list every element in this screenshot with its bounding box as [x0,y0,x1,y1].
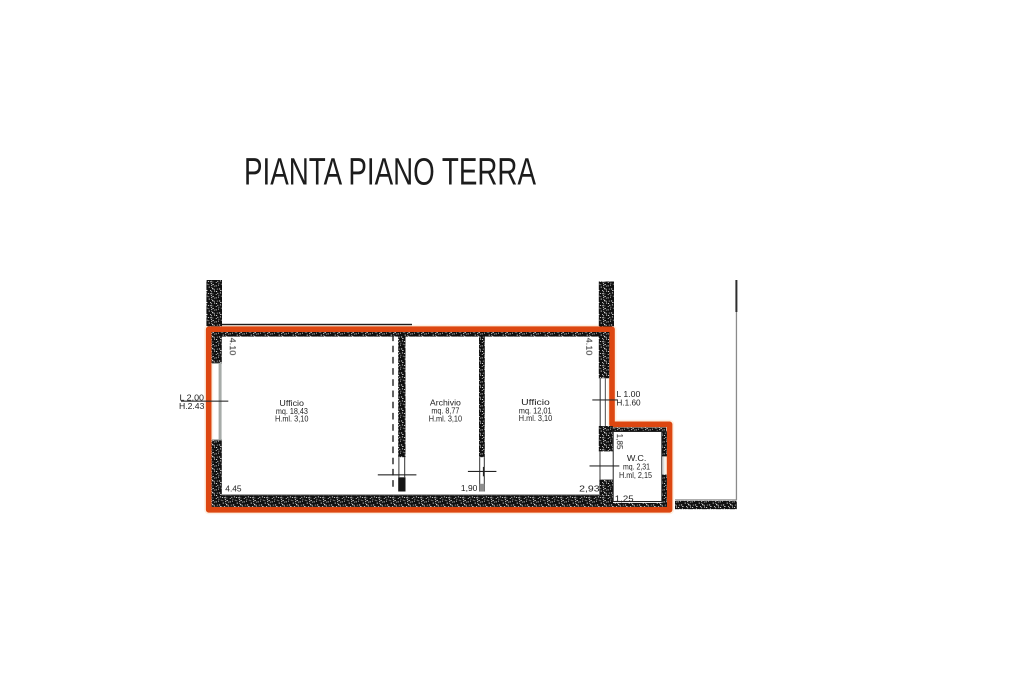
svg-text:H.ml, 2,15: H.ml, 2,15 [619,471,652,480]
svg-text:4.45: 4.45 [225,483,242,493]
svg-text:2,93: 2,93 [579,483,600,493]
svg-text:1,85: 1,85 [615,434,625,450]
svg-text:4.10: 4.10 [584,338,594,356]
svg-text:H.ml. 3,10: H.ml. 3,10 [519,414,553,423]
svg-text:H.1.60: H.1.60 [616,398,640,408]
svg-text:4.10: 4.10 [228,338,238,356]
svg-text:H.2.43: H.2.43 [179,401,205,411]
svg-text:PIANTA PIANO TERRA: PIANTA PIANO TERRA [244,152,536,194]
svg-text:H.ml. 3,10: H.ml. 3,10 [275,414,309,423]
svg-text:H.ml. 3,10: H.ml. 3,10 [429,415,463,424]
svg-text:1,90: 1,90 [461,483,478,493]
svg-text:1,25: 1,25 [615,493,634,503]
